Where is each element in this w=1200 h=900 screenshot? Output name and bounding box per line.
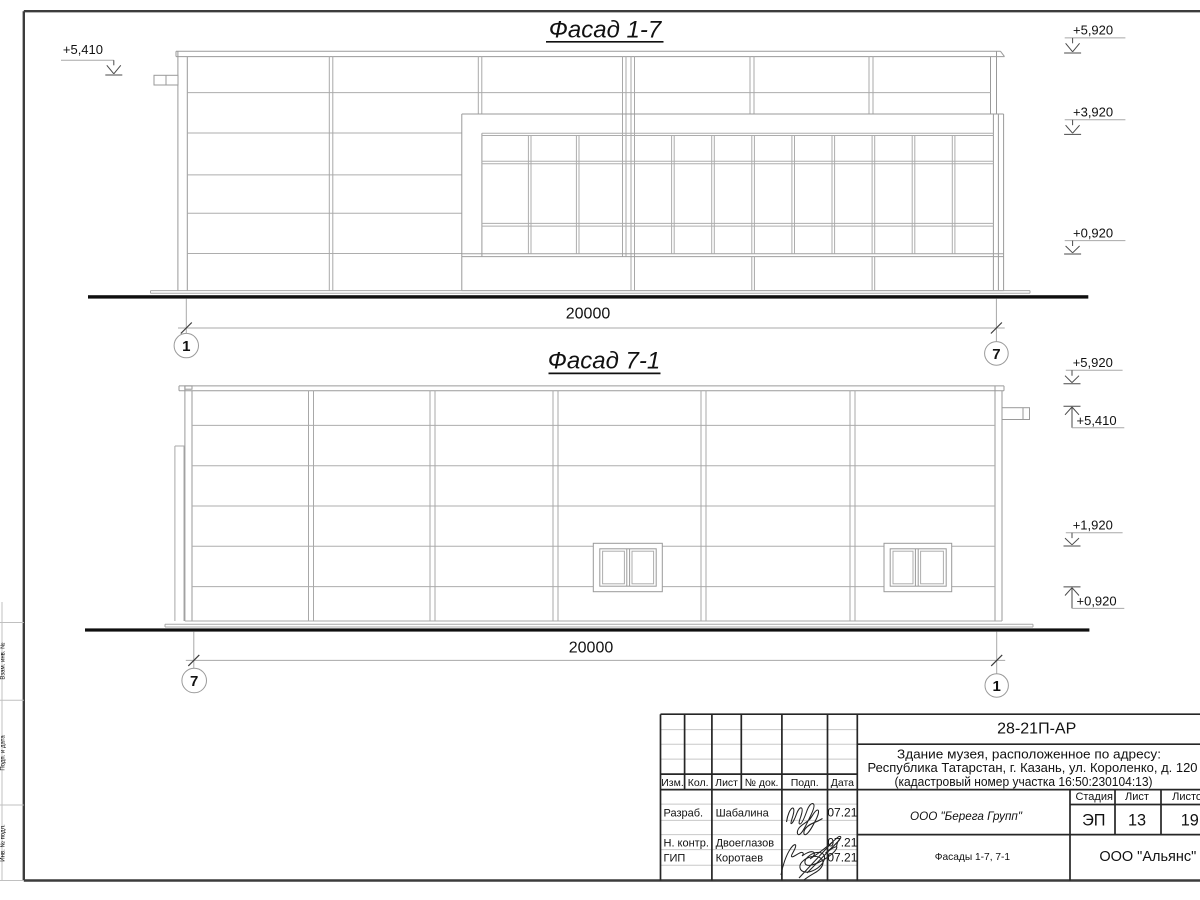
svg-text:Подп. и дата: Подп. и дата [1,735,7,771]
svg-text:19: 19 [1181,811,1199,829]
svg-text:+5,410: +5,410 [63,42,103,57]
svg-text:Н. контр.: Н. контр. [664,837,709,849]
svg-text:ООО "Альянс": ООО "Альянс" [1099,849,1196,865]
svg-text:13: 13 [1128,811,1146,829]
svg-text:Фасад 1-7: Фасад 1-7 [549,17,663,44]
svg-text:Здание музея, расположенное по: Здание музея, расположенное по адресу: [897,747,1161,761]
svg-text:Республика Татарстан, г. Казан: Республика Татарстан, г. Казань, ул. Кор… [868,761,1198,775]
svg-text:Стадия: Стадия [1075,791,1113,803]
svg-text:+5,920: +5,920 [1073,23,1113,38]
svg-text:ЭП: ЭП [1082,811,1105,829]
svg-text:Кол.: Кол. [688,777,709,789]
svg-text:+5,920: +5,920 [1073,355,1113,370]
svg-text:+5,410: +5,410 [1077,413,1117,428]
svg-text:Инв. № подл.: Инв. № подл. [0,824,7,862]
svg-text:20000: 20000 [566,306,611,323]
svg-text:07.21: 07.21 [827,850,857,864]
svg-text:Разраб.: Разраб. [664,808,704,820]
svg-text:+0,920: +0,920 [1077,594,1117,609]
svg-text:Фасад 7-1: Фасад 7-1 [548,348,660,375]
svg-text:(кадастровый номер участка 16:: (кадастровый номер участка 16:50:230104:… [895,775,1153,789]
svg-text:+0,920: +0,920 [1073,225,1113,240]
svg-text:Лист: Лист [715,777,738,789]
svg-text:Лист: Лист [1125,791,1149,803]
svg-text:Дата: Дата [831,777,854,789]
svg-text:Фасады 1-7, 7-1: Фасады 1-7, 7-1 [935,852,1011,863]
svg-text:Коротаев: Коротаев [716,853,764,865]
svg-text:Изм.: Изм. [661,777,684,789]
svg-text:1: 1 [993,678,1001,695]
svg-text:+1,920: +1,920 [1073,518,1113,533]
svg-text:№ док.: № док. [745,777,779,789]
svg-text:ООО "Берега Групп": ООО "Берега Групп" [910,810,1023,823]
svg-text:28-21П-АР: 28-21П-АР [997,721,1076,738]
svg-text:20000: 20000 [569,640,614,657]
svg-text:Двоеглазов: Двоеглазов [716,837,775,849]
svg-text:Взам. инв. №: Взам. инв. № [0,642,7,679]
svg-text:7: 7 [992,346,1000,363]
svg-text:ГИП: ГИП [664,853,686,865]
svg-text:Шабалина: Шабалина [716,808,770,820]
svg-text:07.21: 07.21 [827,806,857,820]
svg-text:Подп.: Подп. [791,777,819,789]
svg-text:7: 7 [190,673,198,690]
svg-text:Листов: Листов [1172,791,1200,803]
svg-text:+3,920: +3,920 [1073,105,1113,120]
svg-text:1: 1 [182,338,190,355]
